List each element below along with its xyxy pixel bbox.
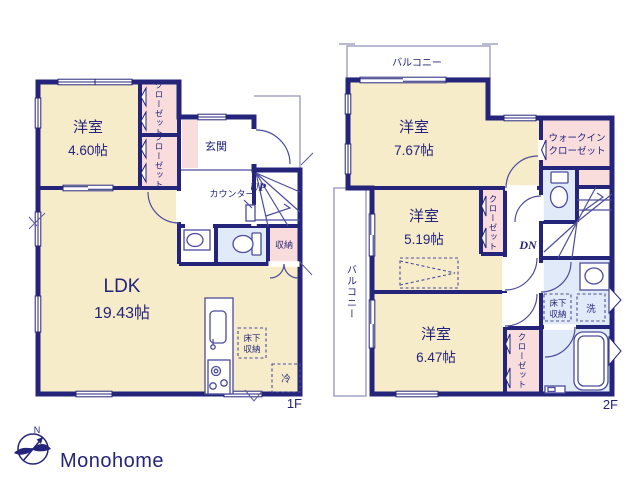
logo: N Monohome <box>14 425 164 472</box>
closet-1f-lower-label: クローゼット <box>154 133 164 190</box>
closet-2f-b-label: クローゼット <box>488 195 498 252</box>
ldk-size: 19.43帖 <box>94 304 150 322</box>
underfloor-2f-line1: 床下 <box>549 298 567 308</box>
stairs-down-label: DN <box>518 238 538 252</box>
room-2f-b-size: 5.19帖 <box>404 232 444 247</box>
ldk-name: LDK <box>104 276 141 297</box>
storage-1f-label: 収納 <box>275 239 293 250</box>
room-2f-c <box>372 292 505 394</box>
floor1-label: 1F <box>287 396 302 411</box>
counter-1f <box>246 205 255 221</box>
counter-label: カウンター <box>209 189 254 199</box>
floor2-label: 2F <box>603 397 618 412</box>
fridge-label: 冷 <box>281 373 291 385</box>
underfloor-2f-line2: 収納 <box>549 309 566 319</box>
underfloor-1f-line1: 床下 <box>243 333 261 343</box>
toilet-2f-door-arc <box>515 196 541 222</box>
underfloor-1f-line2: 収納 <box>243 344 260 354</box>
closet-1f-upper-label: クローゼット <box>154 81 164 138</box>
room-1f-west-size: 4.60帖 <box>68 143 108 158</box>
toilet-bowl-2f <box>551 187 568 208</box>
logo-text: Monohome <box>60 450 164 472</box>
balcony-left-label: バルコニー <box>345 264 357 319</box>
room-2f-c-size: 6.47帖 <box>416 350 456 365</box>
toilet-bowl-1f <box>233 236 253 253</box>
floorplan-svg: 洋室 4.60帖 LDK 19.43帖 玄関 カウンター UP クローゼット ク… <box>0 0 640 480</box>
walkin-closet-line2: クローゼット <box>548 145 605 157</box>
kitchen-sink <box>210 311 226 343</box>
stairs-up-label: UP <box>250 180 267 194</box>
room-b-door-arc <box>505 258 537 290</box>
shoe-cabinet <box>182 120 198 168</box>
closet-2f-c-label: クローゼット <box>517 333 527 390</box>
kitchen-faucet <box>211 345 215 349</box>
entrance-door-arc <box>256 130 290 164</box>
floorplan-page: 洋室 4.60帖 LDK 19.43帖 玄関 カウンター UP クローゼット ク… <box>0 0 640 480</box>
toilet-tank-2f <box>551 172 568 183</box>
walkin-closet-strip <box>577 168 612 187</box>
compass-north-label: N <box>34 425 41 435</box>
room-2f-c-name: 洋室 <box>421 326 451 343</box>
room-1f-west-name: 洋室 <box>73 119 103 136</box>
room-c-door-arc <box>505 294 537 326</box>
sliding-door-west-ldk <box>63 185 113 191</box>
balcony-top-label: バルコニー <box>392 57 442 69</box>
room-2f-a <box>348 80 540 188</box>
compass-bird-icon <box>14 444 51 455</box>
porch-outline <box>254 96 300 168</box>
room-2f-a-size: 7.67帖 <box>394 143 434 158</box>
entrance-label: 玄関 <box>205 139 227 153</box>
floor-1f: 洋室 4.60帖 LDK 19.43帖 玄関 カウンター UP クローゼット ク… <box>29 79 313 411</box>
room-2f-a-name: 洋室 <box>399 119 429 136</box>
floor-2f: バルコニー 洋室 7.67帖 ウォークイン クローゼット 洋室 5.19帖 クロ… <box>334 44 621 412</box>
room-1f-ldk <box>38 188 300 394</box>
window-tick-washroom <box>609 287 621 313</box>
walkin-closet-line1: ウォークイン <box>548 133 605 144</box>
room-2f-b-name: 洋室 <box>409 208 439 225</box>
window-tick-bathroom <box>609 337 621 365</box>
washer-label: 洗 <box>586 303 596 315</box>
